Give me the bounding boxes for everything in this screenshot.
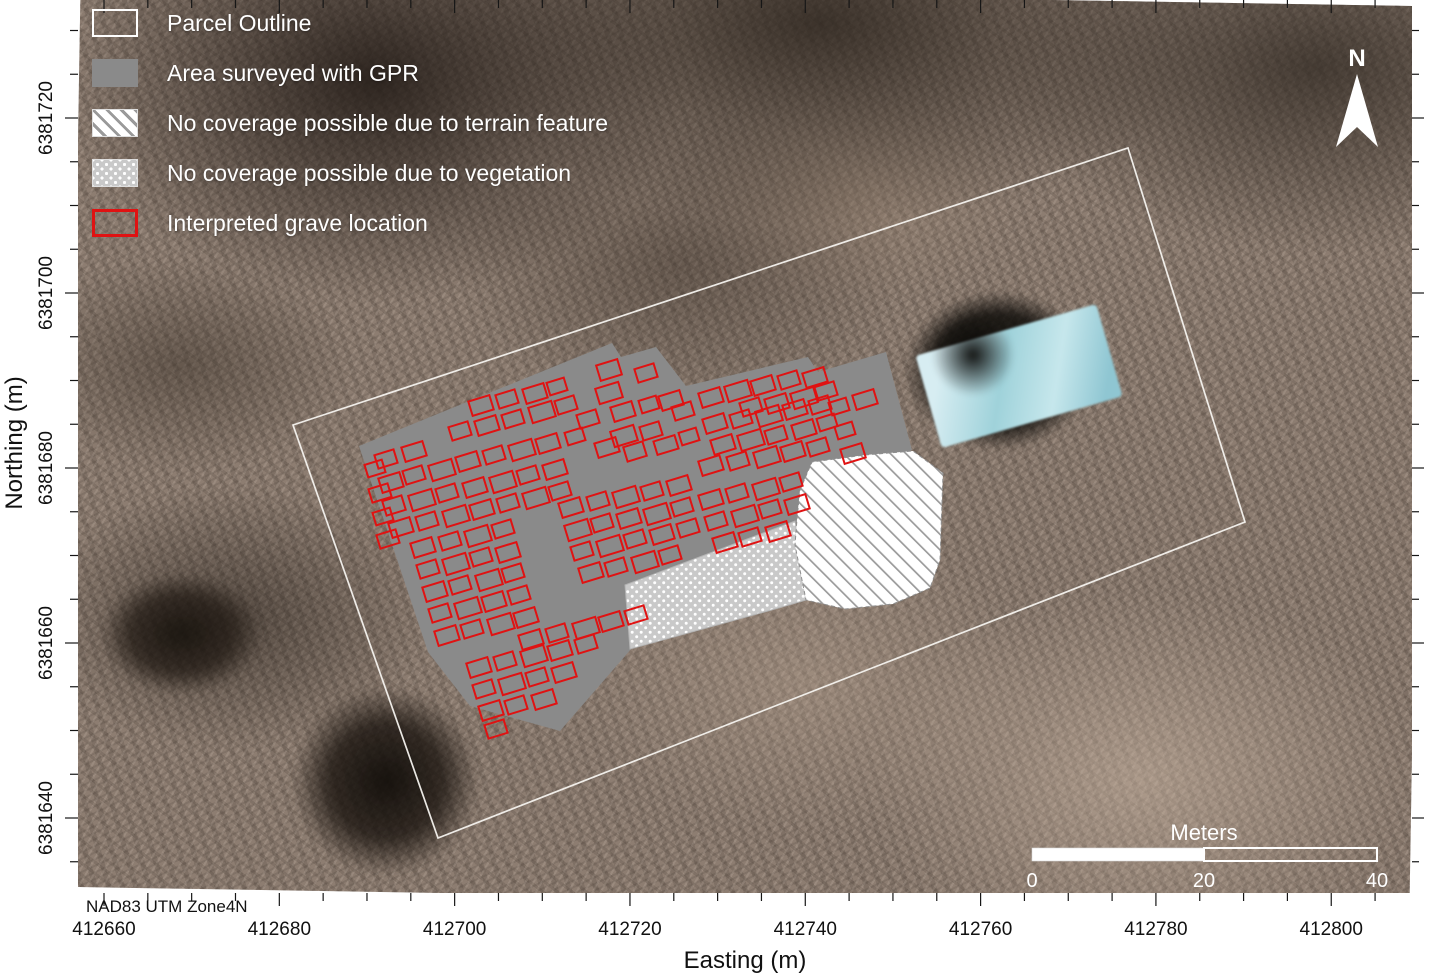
legend-swatch-terrain-icon xyxy=(92,109,138,137)
terrain-no-coverage-area xyxy=(795,451,943,609)
legend-item-terrain: No coverage possible due to terrain feat… xyxy=(92,108,608,138)
scalebar-number: 20 xyxy=(1193,870,1215,892)
legend: Parcel OutlineArea surveyed with GPRNo c… xyxy=(92,8,608,258)
x-tick-label: 412680 xyxy=(248,919,311,940)
legend-swatch-parcel-icon xyxy=(92,9,138,37)
x-tick-label: 412660 xyxy=(72,919,135,940)
scalebar-outline-segment xyxy=(1204,848,1377,861)
legend-label: Parcel Outline xyxy=(167,10,311,37)
x-tick-label: 412720 xyxy=(598,919,661,940)
y-tick-label: 6381660 xyxy=(36,606,57,680)
scalebar-title: Meters xyxy=(1170,820,1237,845)
y-tick-label: 6381700 xyxy=(36,256,57,330)
scale-bar: 02040 xyxy=(1026,848,1388,892)
legend-swatch-grave-icon xyxy=(92,209,138,237)
north-arrow-icon xyxy=(1336,74,1378,147)
grave-rect xyxy=(484,719,507,738)
x-tick-label: 412780 xyxy=(1124,919,1187,940)
legend-item-parcel: Parcel Outline xyxy=(92,8,608,38)
legend-swatch-gpr-icon xyxy=(92,59,138,87)
y-tick-label: 6381680 xyxy=(36,431,57,505)
legend-label: No coverage possible due to terrain feat… xyxy=(167,110,608,137)
legend-item-grave: Interpreted grave location xyxy=(92,208,608,238)
scalebar-solid-segment xyxy=(1032,848,1204,861)
x-tick-label: 412740 xyxy=(774,919,837,940)
legend-label: No coverage possible due to vegetation xyxy=(167,160,571,187)
y-axis-title: Northing (m) xyxy=(1,376,28,509)
legend-label: Area surveyed with GPR xyxy=(167,60,419,87)
x-axis-title: Easting (m) xyxy=(684,947,807,974)
datum-note: NAD83 UTM Zone4N xyxy=(86,897,248,916)
x-tick-label: 412700 xyxy=(423,919,486,940)
north-arrow-label: N xyxy=(1348,45,1365,72)
legend-item-gpr: Area surveyed with GPR xyxy=(92,58,608,88)
scalebar-number: 40 xyxy=(1366,870,1388,892)
y-tick-label: 6381720 xyxy=(36,81,57,155)
legend-label: Interpreted grave location xyxy=(167,210,428,237)
figure-canvas: 4126604126804127004127204127404127604127… xyxy=(0,0,1429,980)
legend-item-vegetation: No coverage possible due to vegetation xyxy=(92,158,608,188)
x-tick-label: 412760 xyxy=(949,919,1012,940)
legend-swatch-vegetation-icon xyxy=(92,159,138,187)
x-tick-label: 412800 xyxy=(1300,919,1363,940)
y-tick-label: 6381640 xyxy=(36,781,57,855)
scalebar-number: 0 xyxy=(1026,870,1037,892)
